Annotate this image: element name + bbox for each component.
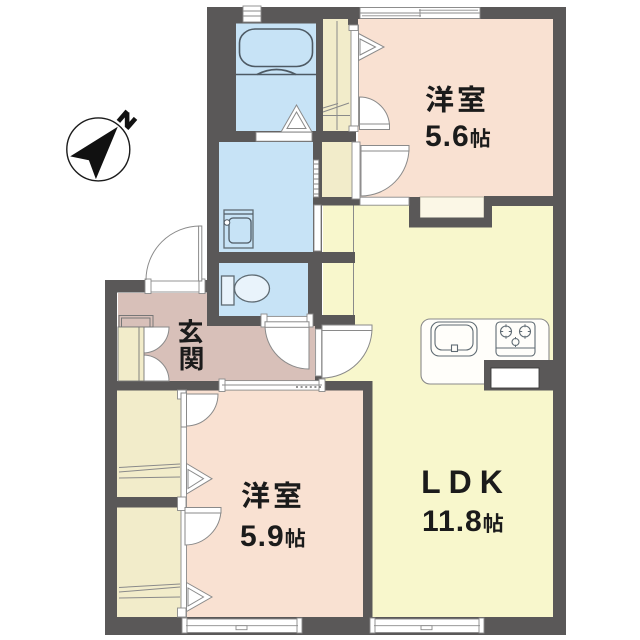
svg-text:洋室: 洋室 [425,85,489,117]
svg-text:洋室: 洋室 [241,481,305,513]
svg-text:玄: 玄 [177,317,203,347]
svg-text:関: 関 [178,344,204,374]
svg-text:LDK: LDK [421,464,511,500]
